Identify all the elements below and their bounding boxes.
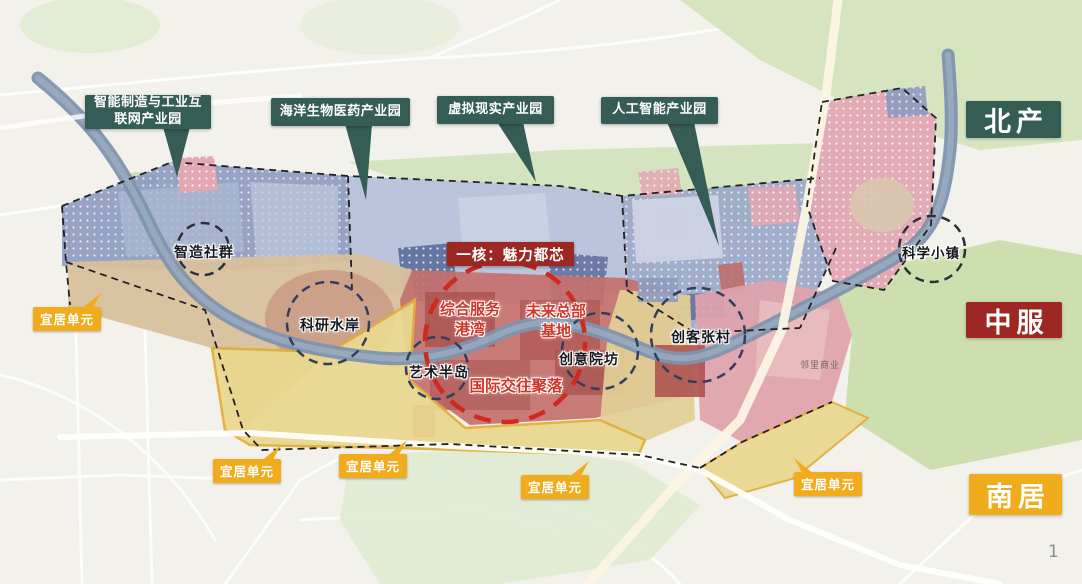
livable-unit-tag-4: 宜居单元 [521, 475, 589, 499]
node-label-research-waterfront: 科研水岸 [300, 315, 360, 335]
node-label-smart-community: 智造社群 [174, 242, 234, 262]
node-label-science-town: 科学小镇 [902, 242, 960, 262]
livable-unit-label: 宜居单元 [528, 480, 582, 495]
planning-map: 智能制造与工业互 联网产业园 海洋生物医药产业园 虚拟现实产业园 人工智能产业园… [0, 0, 1082, 584]
livable-unit-tag-5: 宜居单元 [794, 472, 862, 496]
callout-virtual-reality-park: 虚拟现实产业园 [437, 96, 554, 124]
node-label-creative-courtyard: 创意院坊 [559, 349, 619, 369]
node-label-art-peninsula: 艺术半岛 [409, 362, 469, 382]
region-label-central: 中服 [966, 302, 1062, 338]
core-label-future-headquarters: 未来总部 基地 [516, 302, 596, 341]
core-label-international-exchange: 国际交往聚落 [466, 376, 566, 396]
region-label-north: 北产 [966, 101, 1061, 138]
page-number: 1 [1048, 542, 1059, 562]
callout-artificial-intelligence-park: 人工智能产业园 [601, 97, 718, 124]
callout-smart-manufacturing-park: 智能制造与工业互 联网产业园 [85, 95, 211, 129]
core-label-service-harbor: 综合服务 港湾 [430, 300, 510, 339]
livable-unit-label: 宜居单元 [220, 464, 274, 479]
node-label-maker-zhang-village: 创客张村 [671, 327, 731, 347]
livable-unit-tag-1: 宜居单元 [33, 307, 101, 331]
livable-unit-label: 宜居单元 [40, 312, 94, 327]
region-label-south: 南居 [969, 474, 1062, 515]
livable-unit-label: 宜居单元 [801, 477, 855, 492]
livable-unit-tag-3: 宜居单元 [339, 454, 407, 478]
livable-unit-tag-2: 宜居单元 [213, 459, 281, 483]
core-title: 一核：魅力都芯 [447, 242, 574, 266]
livable-unit-label: 宜居单元 [346, 459, 400, 474]
annotation-neighborhood-commerce: 邻里商业 [800, 358, 840, 371]
callout-marine-biomedicine-park: 海洋生物医药产业园 [271, 98, 410, 126]
